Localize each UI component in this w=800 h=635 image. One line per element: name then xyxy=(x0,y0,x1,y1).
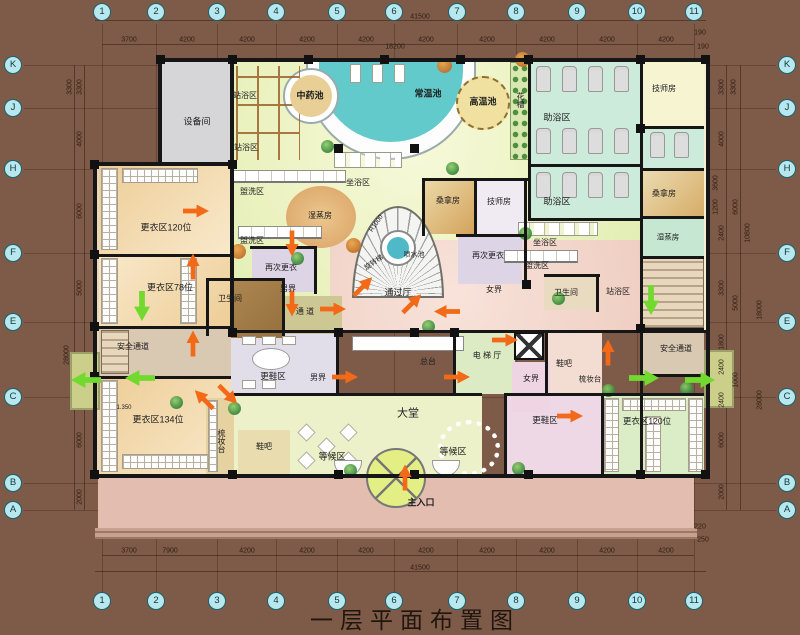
shoe-bar-left xyxy=(238,430,290,474)
plan-label: 高温池 xyxy=(469,98,496,107)
drawing-title: 一层平面布置图 xyxy=(310,601,520,635)
dimension-label: 4000 xyxy=(77,131,84,147)
tree xyxy=(321,140,334,153)
plan-label: 桑拿房 xyxy=(436,197,460,205)
wall xyxy=(453,332,456,394)
plan-label: 再次更衣 xyxy=(472,252,504,260)
dimension-label: 18200 xyxy=(385,44,404,51)
column xyxy=(410,328,419,337)
plan-label: 安全通道 xyxy=(660,345,692,353)
grid-bubble: F xyxy=(778,244,796,262)
grid-bubble: 3 xyxy=(208,592,226,610)
dimension-label: 4200 xyxy=(539,548,555,555)
dimension-label: 4200 xyxy=(239,548,255,555)
dimension-label: 1000 xyxy=(733,372,740,388)
grid-bubble: 3 xyxy=(208,3,226,21)
grid-bubble: 5 xyxy=(328,3,346,21)
dimension-label: 4200 xyxy=(599,37,615,44)
grid-bubble: 9 xyxy=(568,592,586,610)
sofa xyxy=(242,336,256,345)
wall xyxy=(230,393,482,396)
grid-bubble: 11 xyxy=(685,3,703,21)
dimension-line xyxy=(740,65,741,510)
column xyxy=(90,250,99,259)
column xyxy=(524,55,533,64)
wall xyxy=(642,216,704,219)
dimension-label: 190 xyxy=(694,30,706,37)
plan-label: 电 梯 厅 xyxy=(473,352,501,360)
dimension-label: 3300 xyxy=(77,79,84,95)
floor-plan-canvas: 11223344556677889910101111KKJJHHFFEECCBB… xyxy=(0,0,800,634)
lockers xyxy=(622,398,686,411)
dimension-line xyxy=(102,555,694,556)
wall xyxy=(544,274,600,277)
plan-label: 站浴区 xyxy=(234,144,258,152)
flow-arrow-orange xyxy=(602,339,615,365)
plan-label: 常温池 xyxy=(414,90,441,99)
grid-bubble: 1 xyxy=(93,3,111,21)
grid-bubble: 7 xyxy=(448,3,466,21)
lockers xyxy=(101,168,118,250)
dimension-label: 220 xyxy=(694,524,706,531)
wall xyxy=(158,58,162,166)
grid-bubble: 2 xyxy=(147,3,165,21)
bed xyxy=(536,128,551,154)
flower-trough xyxy=(510,62,530,160)
dimension-label: 6000 xyxy=(77,203,84,219)
column xyxy=(334,144,343,153)
plan-label: 技师房 xyxy=(487,198,511,206)
lockers xyxy=(122,168,198,183)
dimension-label: 5000 xyxy=(77,280,84,296)
wall xyxy=(456,234,524,237)
stair-safeL xyxy=(101,330,129,374)
grid-bubble: 4 xyxy=(267,3,285,21)
sofa xyxy=(262,380,276,389)
bed xyxy=(614,172,629,198)
dimension-label: 6000 xyxy=(733,199,740,215)
dimension-label: 3600 xyxy=(713,175,720,191)
grid-bubble: 10 xyxy=(628,3,646,21)
lounger xyxy=(350,64,361,83)
sofa xyxy=(262,336,276,345)
plaza-steps-band xyxy=(95,528,697,539)
plan-label: 更衣区78位 xyxy=(147,284,193,293)
plan-label: 主入口 xyxy=(407,499,434,508)
dimension-line xyxy=(95,20,706,21)
dimension-label: 4200 xyxy=(658,37,674,44)
grid-bubble: 10 xyxy=(628,592,646,610)
grid-bubble: F xyxy=(4,244,22,262)
elevator-shaft xyxy=(514,332,544,360)
dimension-label: 4200 xyxy=(539,37,555,44)
plan-label: 再次更衣 xyxy=(265,264,297,272)
dimension-label: 7900 xyxy=(162,548,178,555)
plan-label: 助浴区 xyxy=(543,198,570,207)
dimension-label: 250 xyxy=(697,537,709,544)
bed xyxy=(536,172,551,198)
plan-label: 更鞋区 xyxy=(532,416,558,425)
dimension-label: 3700 xyxy=(121,37,137,44)
dimension-label: 2000 xyxy=(719,484,726,500)
wall xyxy=(99,254,231,257)
plan-label: 男界 xyxy=(310,374,326,382)
dimension-label: 28000 xyxy=(757,390,764,409)
dimension-label: 4200 xyxy=(179,37,195,44)
wall xyxy=(596,274,599,312)
bed xyxy=(588,128,603,154)
bed xyxy=(614,66,629,92)
dimension-label: 6000 xyxy=(719,432,726,448)
tech-room-topright xyxy=(642,62,704,126)
column xyxy=(522,280,531,289)
wall xyxy=(545,332,548,394)
column xyxy=(636,55,645,64)
plan-label: 站浴区 xyxy=(606,288,630,296)
plan-label: 更衣区120位 xyxy=(623,417,671,426)
sit-bath-bench-top xyxy=(334,152,402,168)
grid-bubble: E xyxy=(4,313,22,331)
bed xyxy=(562,66,577,92)
column xyxy=(90,160,99,169)
dimension-label: 3700 xyxy=(121,548,137,555)
dimension-label: 4200 xyxy=(418,548,434,555)
dimension-label: 2400 xyxy=(719,225,726,241)
grid-bubble: A xyxy=(778,501,796,519)
tree xyxy=(228,402,241,415)
column xyxy=(334,470,343,479)
wall xyxy=(642,126,704,129)
sofa-table xyxy=(252,348,290,370)
column xyxy=(450,328,459,337)
grid-bubble: K xyxy=(4,56,22,74)
wall xyxy=(314,246,317,294)
grid-bubble: 2 xyxy=(147,592,165,610)
plan-label: 等候区 xyxy=(439,448,466,457)
dimension-label: 1800 xyxy=(719,334,726,350)
wall xyxy=(642,168,704,171)
plan-label: 等候区 xyxy=(318,453,345,462)
dimension-label: 2000 xyxy=(77,489,84,505)
dimension-line xyxy=(74,65,75,510)
reception-counter xyxy=(352,336,464,351)
column xyxy=(636,124,645,133)
dimension-label: 2400 xyxy=(719,359,726,375)
column xyxy=(228,55,237,64)
dimension-line xyxy=(726,65,727,510)
dimension-label: 4200 xyxy=(418,37,434,44)
grid-bubble: C xyxy=(4,388,22,406)
grid-bubble: J xyxy=(4,99,22,117)
wall xyxy=(422,178,425,236)
plan-label: 通过厅 xyxy=(384,289,411,298)
plan-label: 大堂 xyxy=(397,409,419,420)
dimension-label: 4000 xyxy=(719,131,726,147)
autumn-tree xyxy=(346,238,361,253)
grid-bubble: J xyxy=(778,99,796,117)
plan-label: 设备间 xyxy=(183,118,210,127)
grid-bubble: 4 xyxy=(267,592,285,610)
column xyxy=(90,470,99,479)
dimension-label: 41500 xyxy=(410,14,429,21)
column xyxy=(334,328,343,337)
lounger xyxy=(394,64,405,83)
wall xyxy=(528,164,640,167)
sofa xyxy=(242,380,256,389)
column xyxy=(304,55,313,64)
dimension-label: 1200 xyxy=(713,199,720,215)
grid-bubble: 1 xyxy=(93,592,111,610)
grid-bubble: 8 xyxy=(507,3,525,21)
wall xyxy=(528,218,640,221)
column xyxy=(410,144,419,153)
wall xyxy=(230,330,706,333)
dimension-label: 4200 xyxy=(479,37,495,44)
wall xyxy=(474,178,477,234)
column xyxy=(228,470,237,479)
plan-label: 花槽 xyxy=(516,92,524,108)
plan-label: 湿蒸房 xyxy=(657,233,680,241)
plan-label: 桑拿房 xyxy=(652,190,676,198)
tree xyxy=(170,396,183,409)
wall xyxy=(528,60,531,218)
dimension-label: 190 xyxy=(697,44,709,51)
dimension-label: 6000 xyxy=(77,432,84,448)
grid-bubble: K xyxy=(778,56,796,74)
wall xyxy=(336,332,339,394)
lockers xyxy=(122,454,214,469)
wall xyxy=(504,393,704,396)
plan-label: 站浴区 xyxy=(233,92,257,100)
wall xyxy=(93,162,97,478)
plan-label: 鞋吧 xyxy=(556,360,572,368)
wall xyxy=(601,394,604,476)
wall xyxy=(250,246,316,249)
column xyxy=(90,322,99,331)
wash-counter-1 xyxy=(232,170,346,183)
dimension-label: 3300 xyxy=(719,79,726,95)
column xyxy=(701,55,710,64)
plan-label: 卫生间 xyxy=(218,295,242,303)
wall xyxy=(99,376,231,379)
plan-label: 男界 xyxy=(280,285,296,293)
bed xyxy=(588,66,603,92)
equipment-room xyxy=(162,62,232,166)
wall xyxy=(160,58,708,62)
dimension-label: 4200 xyxy=(358,37,374,44)
grid-bubble: A xyxy=(4,501,22,519)
grid-bubble: E xyxy=(778,313,796,331)
dimension-line xyxy=(95,571,706,572)
sauna-center xyxy=(424,180,474,234)
grid-bubble: B xyxy=(778,474,796,492)
dimension-label: 3300 xyxy=(719,280,726,296)
dimension-label: 3300 xyxy=(67,79,74,95)
plan-label: 鞋吧 xyxy=(256,443,272,451)
column xyxy=(380,55,389,64)
plan-label: 盥洗区 xyxy=(240,188,264,196)
dimension-label: 4200 xyxy=(299,37,315,44)
bed xyxy=(674,132,689,158)
dimension-label: 41500 xyxy=(410,565,429,572)
dimension-label: 4200 xyxy=(239,37,255,44)
dimension-label: 2400 xyxy=(719,392,726,408)
grid-bubble: 6 xyxy=(385,3,403,21)
grid-bubble: C xyxy=(778,388,796,406)
bed xyxy=(614,128,629,154)
dimension-label: 3300 xyxy=(731,79,738,95)
column xyxy=(456,55,465,64)
wall xyxy=(642,328,704,331)
lounger xyxy=(372,64,383,83)
dimension-label: 5000 xyxy=(733,295,740,311)
dimension-label: 4200 xyxy=(599,548,615,555)
plan-label: 卫生间 xyxy=(554,289,578,297)
plan-label: 盥洗区 xyxy=(525,262,549,270)
plan-label: 女界 xyxy=(523,375,539,383)
wall xyxy=(95,162,237,166)
dimension-label: 4200 xyxy=(658,548,674,555)
dimension-label: 28000 xyxy=(64,345,71,364)
dimension-label: 4200 xyxy=(299,548,315,555)
dimension-label: 18000 xyxy=(757,300,764,319)
wall xyxy=(642,256,704,259)
wall xyxy=(206,278,284,281)
dimension-label: 4200 xyxy=(479,548,495,555)
plan-label: 总台 xyxy=(420,358,436,366)
dimension-label: 10800 xyxy=(745,223,752,242)
column xyxy=(636,470,645,479)
plan-label: 女界 xyxy=(486,286,502,294)
wall xyxy=(504,394,507,476)
sofa xyxy=(282,336,296,345)
plan-label: 喷水池 xyxy=(404,252,425,259)
grid-bubble: H xyxy=(4,160,22,178)
plan-label: 坐浴区 xyxy=(346,179,370,187)
lockers xyxy=(101,258,118,324)
grid-bubble: 11 xyxy=(685,592,703,610)
bed xyxy=(588,172,603,198)
plan-label: 更衣区134位 xyxy=(132,416,183,425)
safe-passage-right xyxy=(642,330,704,376)
grid-bubble: B xyxy=(4,474,22,492)
column xyxy=(410,470,419,479)
plan-label: 梳妆台 xyxy=(579,375,602,383)
column xyxy=(228,328,237,337)
lockers xyxy=(101,380,118,472)
tree xyxy=(446,162,459,175)
plan-label: 安全通道 xyxy=(117,343,149,351)
column xyxy=(524,470,533,479)
column xyxy=(636,324,645,333)
dimension-label: 4200 xyxy=(358,548,374,555)
plan-label: 通 道 xyxy=(296,308,314,316)
bed xyxy=(650,132,665,158)
dimension-line xyxy=(84,65,85,510)
plan-label: 梳妆台 xyxy=(217,429,225,453)
lockers xyxy=(604,398,619,472)
plan-label: 中药池 xyxy=(296,92,323,101)
plan-label: 助浴区 xyxy=(543,114,570,123)
plan-label: 技师房 xyxy=(652,85,676,93)
plan-label: 湿蒸房 xyxy=(308,212,332,220)
plan-label: 更鞋区 xyxy=(260,372,286,381)
wall xyxy=(99,326,231,329)
plan-label: 坐浴区 xyxy=(533,239,557,247)
column xyxy=(228,160,237,169)
grid-bubble: H xyxy=(778,160,796,178)
wall xyxy=(706,58,710,478)
plan-label: 1.350 xyxy=(116,405,131,411)
bed xyxy=(536,66,551,92)
lockers xyxy=(688,398,703,472)
column xyxy=(156,55,165,64)
bed xyxy=(562,128,577,154)
bed xyxy=(562,172,577,198)
plan-label: 盥洗区 xyxy=(240,237,264,245)
grid-bubble: 9 xyxy=(568,3,586,21)
plan-label: 更衣区120位 xyxy=(140,224,191,233)
wall xyxy=(230,164,234,332)
column xyxy=(701,470,710,479)
